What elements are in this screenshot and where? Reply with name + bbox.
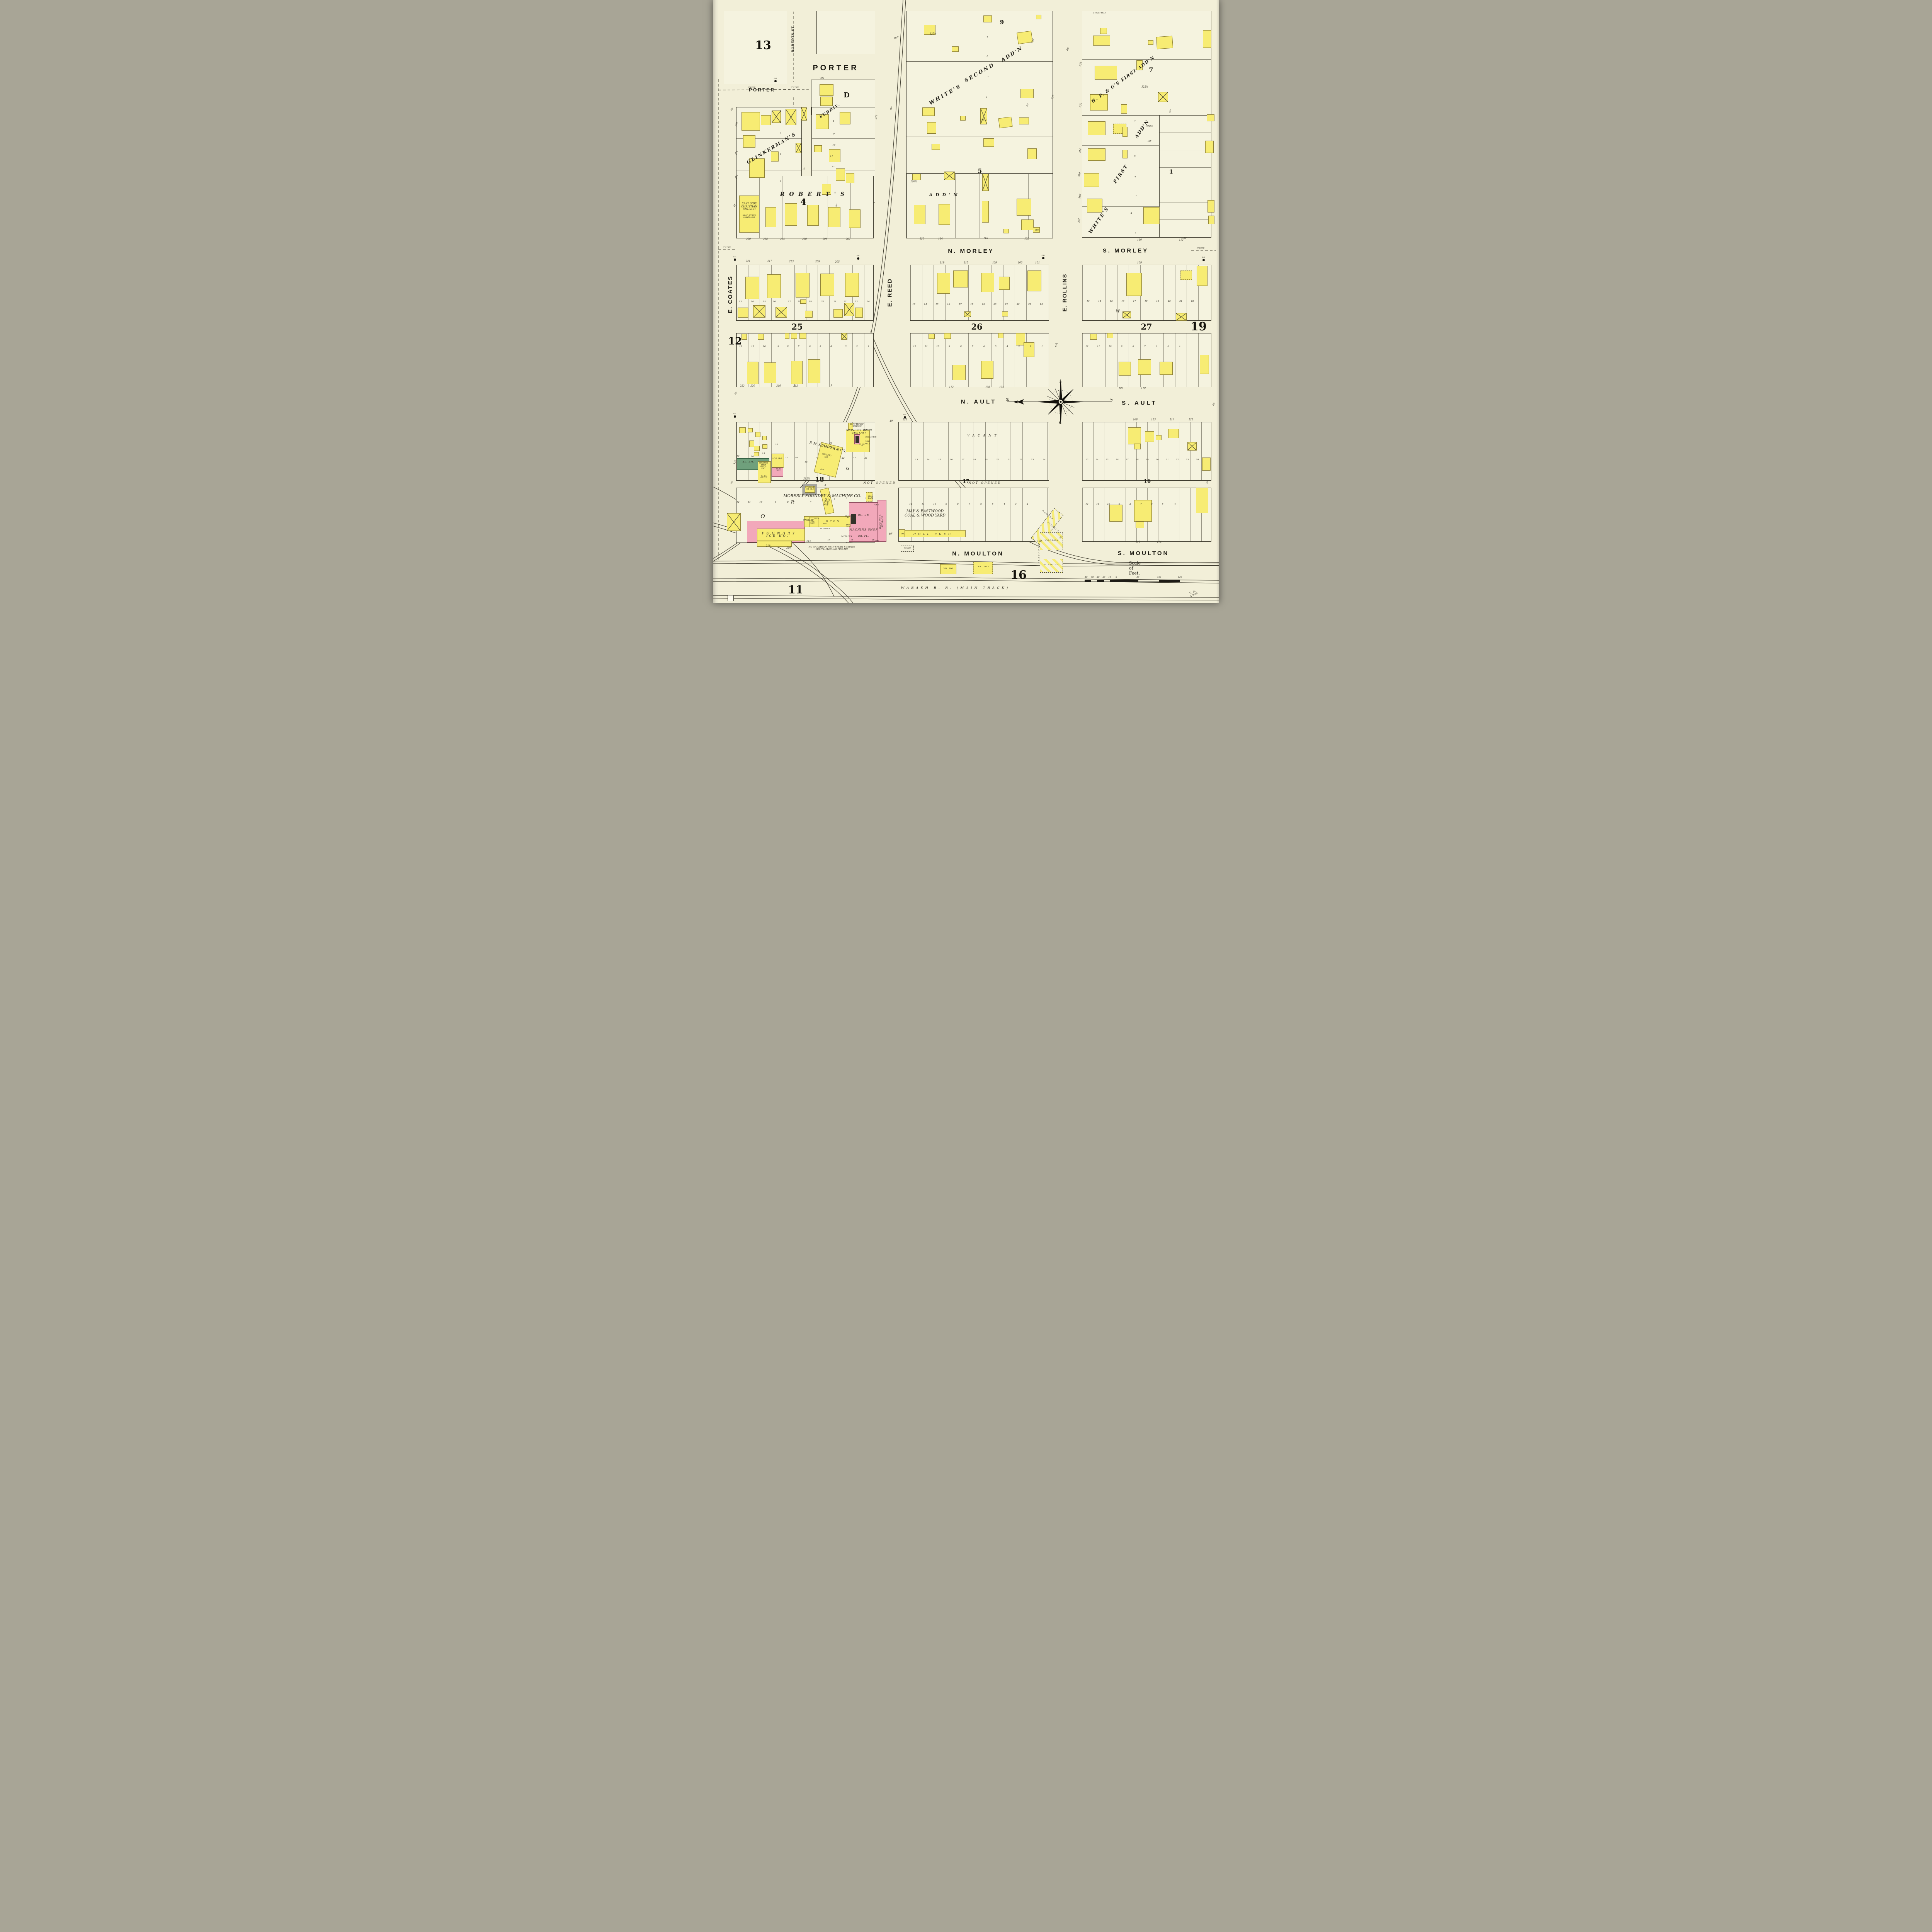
annotation-label: COAL SHED [913,533,953,536]
annotation-label: WOODEN [1044,540,1059,542]
script-label: 20 [1168,300,1170,303]
script-label: 15 [938,459,941,461]
building [807,205,819,226]
script-label: 104 [999,386,1004,389]
script-label: 21 [1008,459,1010,461]
script-label: 12 [913,345,916,348]
script-label: 14 [1095,459,1098,461]
script-label: 15 [1105,459,1108,461]
script-label: 11 [922,503,924,505]
building [767,274,781,298]
building [1036,15,1041,19]
scale-bar-number: 10 [1109,576,1111,578]
building [982,174,989,191]
script-label: 115 [964,262,968,265]
building [1084,173,1099,187]
scale-bar-segment [1091,580,1097,582]
script-label: 1 [986,96,988,99]
script-label: 18 [970,303,973,306]
annotation-label: PR. 20 [815,518,820,519]
script-label: 100 [1037,541,1042,543]
annotation-label: CORE OVEN [810,521,815,524]
building [922,107,935,116]
building [1019,117,1029,124]
double-hydrant-dot [1042,257,1044,259]
script-label: 11 [751,345,754,348]
annotation-label: OFF. [901,534,905,536]
script-label: 18' [872,539,875,541]
block-outline [898,422,1049,481]
annotation-label: TEL. OFF. [976,566,991,568]
script-label: 14 [924,303,927,306]
building [1134,444,1141,449]
script-label: 15 [1110,300,1112,303]
sheet-reference-number: 19 [1190,320,1207,333]
building [964,311,971,317]
script-label: 13 [912,303,915,306]
script-label: 10 [832,144,835,146]
building [833,309,843,318]
script-label: 18 [973,459,976,461]
script-label: 17 [961,459,964,461]
script-label: 24 [1040,303,1043,306]
script-label: 8 [960,345,962,348]
building [785,203,797,226]
building [1087,199,1102,213]
script-label: 20' [730,107,734,111]
annotation-label: 6"W.PIPE [723,247,731,249]
building [1158,92,1168,102]
script-label: 112 [1179,239,1184,242]
building [1093,36,1110,46]
annotation-label: IRON RACK [868,496,873,500]
script-label: 22 [1176,459,1179,461]
building [1208,216,1214,224]
script-label: 7 [1144,345,1146,348]
script-label: 22 [1017,303,1019,306]
block-number: 1 [1169,169,1173,175]
script-label: 10 [763,345,765,348]
script-label: 20' [803,167,806,171]
building [805,311,813,318]
script-label: 109 [992,262,997,265]
annotation-label: NOT OPENED [864,481,896,485]
building [1196,488,1208,513]
script-label: A [831,385,832,388]
annotation-label: GRO. [1035,230,1039,232]
script-label: 13 [915,459,918,461]
building [828,207,840,227]
building [791,361,803,384]
script-label: 5 [1162,503,1163,505]
script-label: 11 [748,501,750,503]
script-label: 119 [940,262,944,265]
script-label: 21 [1166,459,1168,461]
annotation-label: EAST SIDE CHRISTIAN CHURCH [741,202,757,211]
building [998,333,1003,338]
block-number: 7 [1149,66,1153,73]
script-label: 23 [855,301,857,303]
script-label: 16 [947,303,950,306]
script-label: 16 [1116,459,1118,461]
script-label: 220 [746,238,751,241]
building [1095,66,1117,80]
script-label: 2 [780,153,781,156]
script-label: 22 [842,457,844,459]
script-label: 9 [946,503,947,505]
building [855,436,859,443]
building [1200,355,1209,374]
annotation-label: FAN [823,523,827,524]
script-label: 212½ [803,478,810,481]
double-hydrant-dot [1202,259,1205,261]
building [999,277,1010,290]
script-label: 114 [938,238,943,241]
building [1027,148,1037,159]
script-label: 117 [1170,419,1174,422]
building [1205,141,1214,153]
scale-bar-number: 50 [1137,576,1139,578]
block-number: 25 [791,322,803,332]
building [1017,31,1033,44]
script-label: 20' [1206,481,1209,485]
block-number: 18 [815,476,824,483]
annotation-label: VACANT [967,434,999,438]
script-label: 22 [844,301,846,303]
script-label: 8 [957,503,959,505]
script-label: 217 [767,260,772,263]
building [796,273,810,298]
building [953,270,968,287]
building [1168,429,1179,438]
map-canvas: 18 MAR. 1909 MOBERLY Mo. Scale of Feet. … [713,0,1219,603]
script-label: 21 [829,442,832,444]
building [799,333,806,339]
script-label: 14 [1098,300,1101,303]
script-label: T [1054,343,1057,348]
building [836,168,845,181]
script-label: 11 [1097,345,1100,348]
script-label: 219½ [760,476,767,479]
script-label: 7 [798,345,799,348]
script-label: 6 [983,345,985,348]
annotation-label: D.H. [733,256,737,258]
script-label: 24 [1043,459,1045,461]
annotation-label: SWINDELL BRO'S SAW MILL [846,429,872,435]
addition-label: ROBERT'S [780,192,849,198]
annotation-label: SCALES [846,542,852,543]
annotation-label: PLATFORM [1038,543,1041,563]
annotation-label: D.H. [1202,257,1206,258]
annotation-label: D.H. [1042,255,1045,256]
script-label: 112 [949,386,954,389]
building [761,115,771,125]
script-label: 23 [1186,459,1189,461]
script-label: 3 [1135,195,1137,197]
annotation-label: IR. CH. 25 [859,444,865,447]
building [1180,270,1192,280]
building [944,333,951,339]
script-label: G [846,466,850,471]
script-label: 216 [786,547,791,550]
scale-bar-number: 50 [1085,576,1088,578]
building [1122,150,1128,158]
script-label: 315½ [980,119,987,122]
annotation-label: ENG. 20 H.P. [866,437,876,439]
annotation-label: STORAGE (IR. CL.) [805,486,815,490]
script-label: 218 [763,238,768,241]
script-label: 310 [1078,172,1082,177]
script-label: 10 [1109,345,1111,348]
script-label: 19 [804,461,807,464]
script-label: 23 [853,457,855,459]
building [742,112,760,131]
script-label: 4 [986,36,988,38]
scale-bar-title: Scale of Feet. [1129,561,1141,576]
script-label: 100' [894,36,900,40]
block-number: 5 [978,168,982,175]
street-label: E. ROLLINS [1062,274,1068,312]
building [929,334,935,339]
building [755,432,760,437]
script-label: 110 [1136,541,1140,544]
script-label: 212 [806,541,811,543]
script-label: 14 [751,456,753,458]
building [932,144,940,150]
script-label: 7 [780,133,781,135]
script-label: 209 [815,261,820,264]
script-label: 3 [986,55,988,57]
building [998,117,1012,128]
building [727,513,741,531]
double-hydrant-dot [857,257,859,260]
building [1160,362,1173,375]
script-label: 216 [776,385,781,388]
annotation-label: BL. SM. [858,514,871,517]
script-label: 11 [830,155,833,158]
building [1207,114,1214,121]
building [739,196,759,233]
railroad-track [713,560,1219,563]
block-number: D [844,92,850,99]
building [758,334,764,340]
building [754,452,759,456]
annotation-label: 1 STORY FR. D. [1093,13,1106,15]
annotation-label: OIL HO. [943,568,954,570]
script-label: 205 [835,261,840,264]
building [796,143,801,153]
script-label: 6 [980,503,982,505]
script-label: 101 [1035,262,1040,265]
script-label: 20 [815,457,818,459]
script-label: 5 [1167,345,1169,348]
building [1122,311,1131,318]
script-label: 222 [740,385,745,388]
block-outline [1159,115,1211,238]
script-label: 30' [1184,237,1187,240]
building [743,135,755,148]
building [912,174,921,180]
addition-label: ADD'N [929,193,960,197]
script-label: 8 [787,345,789,348]
script-label: 212 [793,385,798,388]
scale-bar-number: 20 [1103,576,1105,578]
sheet-reference-number: 16 [1010,569,1027,582]
script-label: 16 [950,459,952,461]
script-label: 19 [1156,300,1159,303]
script-label: 20 [1156,459,1158,461]
script-label: 4 [1134,176,1136,178]
building [800,299,806,304]
annotation-label: D.H. [733,413,737,415]
script-label: 4 [1007,345,1008,348]
street-label: N. MOULTON [952,551,1004,558]
street-label: S. MOULTON [1118,551,1169,557]
street-label: N. AULT [961,399,997,406]
building [914,205,925,224]
double-hydrant-dot [904,416,906,418]
script-label: 24 [864,457,867,459]
annotation-label: D.H. [857,255,860,257]
annotation-label: 6"W.PIPE [1197,248,1204,250]
script-label: 9 [833,133,835,135]
script-label: 18 [1145,300,1147,303]
building [1119,362,1131,376]
building [776,307,787,318]
building [981,361,993,379]
building [844,303,854,316]
script-label: 319 [1051,94,1055,99]
script-label: 16 [773,301,776,303]
scale-bar-segment [1085,580,1091,582]
script-label: 4 [834,498,835,500]
building [1176,313,1187,321]
script-label: 103 [1018,262,1022,265]
scale-bar-segment [1104,580,1110,582]
building [1202,457,1211,471]
script-label: 2 [1131,212,1132,214]
script-label: 7 [972,345,973,348]
script-label: 16 [775,444,778,446]
script-label: 327½ [930,33,937,36]
building [937,273,950,294]
script-label: 13 [1087,300,1089,303]
building [745,277,759,299]
annotation-label: OPEN [826,520,841,523]
annotation-label: ICE HO. [766,534,789,537]
script-label: 11 [925,345,927,348]
building [849,209,861,228]
annotation-label: BR. FL. [858,535,869,537]
script-label: 16 [1121,300,1124,303]
script-label: 14 [751,301,753,303]
building [1134,500,1152,522]
script-label: 40' [889,420,893,423]
building [841,333,847,340]
script-label: 8 [1133,345,1134,348]
script-label: 206 [823,238,827,241]
annotation-label: BL. SM. [743,461,755,463]
script-label: 5 [825,484,826,486]
building [765,207,776,227]
building [808,359,820,383]
building [1187,442,1197,451]
annotation-label: SCATTERED LUMBER [850,423,864,428]
script-label: 12 [736,501,739,503]
building [1088,121,1105,135]
script-label: 4 [1174,503,1176,505]
building [738,308,748,318]
building [1156,36,1173,49]
script-label: 9 [1121,345,1122,348]
annotation-label: NOT OPENED [969,481,1002,485]
annotation-label: ICE HO. [772,458,783,460]
annotation-label: MOBERLY FOUNDRY & MACHINE CO. [783,494,861,498]
script-label: 210 [802,238,807,241]
script-label: 10 [933,503,936,505]
script-label: 20 [993,303,996,306]
building [944,172,955,180]
building [1020,89,1034,98]
script-label: 1 [1041,345,1043,348]
script-label: 2 [1030,345,1031,348]
building [1197,266,1207,286]
script-label: 3 [846,497,847,499]
street-label: E. REED [887,278,894,307]
script-label: 30' [734,391,738,395]
building [952,46,959,52]
script-label: 18 [795,457,798,459]
block-outline [910,333,1049,387]
script-label: 6 [810,501,811,503]
script-label: 1 [865,497,867,499]
script-label: 121 [903,419,907,422]
building [846,173,854,183]
building [1148,40,1153,45]
script-label: 121 [1189,419,1193,422]
building [939,204,950,225]
script-label: 213 [789,261,794,264]
sheet-reference-number: 11 [788,583,803,595]
script-label: 22 [1019,459,1022,461]
building [1107,333,1113,338]
building [801,107,807,121]
street-label: N. MORLEY [948,248,994,255]
script-label: 23 [1028,303,1031,306]
double-hydrant-dot [734,259,736,261]
script-label: N [1006,398,1010,401]
script-label: O [760,514,765,520]
building [1207,200,1214,213]
building [772,454,784,468]
script-label: 109 [1133,419,1138,422]
annotation-label: WARE HO. & STORAGE [879,514,884,529]
script-label: 10 [759,501,762,503]
scale-bar-number: 100 [1157,576,1162,578]
script-label: 110 [1141,388,1146,390]
block-number: 9 [1000,19,1004,26]
script-label: 15 [763,301,765,303]
script-label: 2 [856,345,858,348]
script-label: 18 [798,301,800,303]
block-number: 27 [1141,322,1152,332]
script-label: 12 [1085,345,1088,348]
railroad-track [713,563,1219,566]
script-label: 17 [788,301,791,303]
script-label: 1 [868,345,869,348]
building [981,273,994,292]
building [791,333,797,339]
